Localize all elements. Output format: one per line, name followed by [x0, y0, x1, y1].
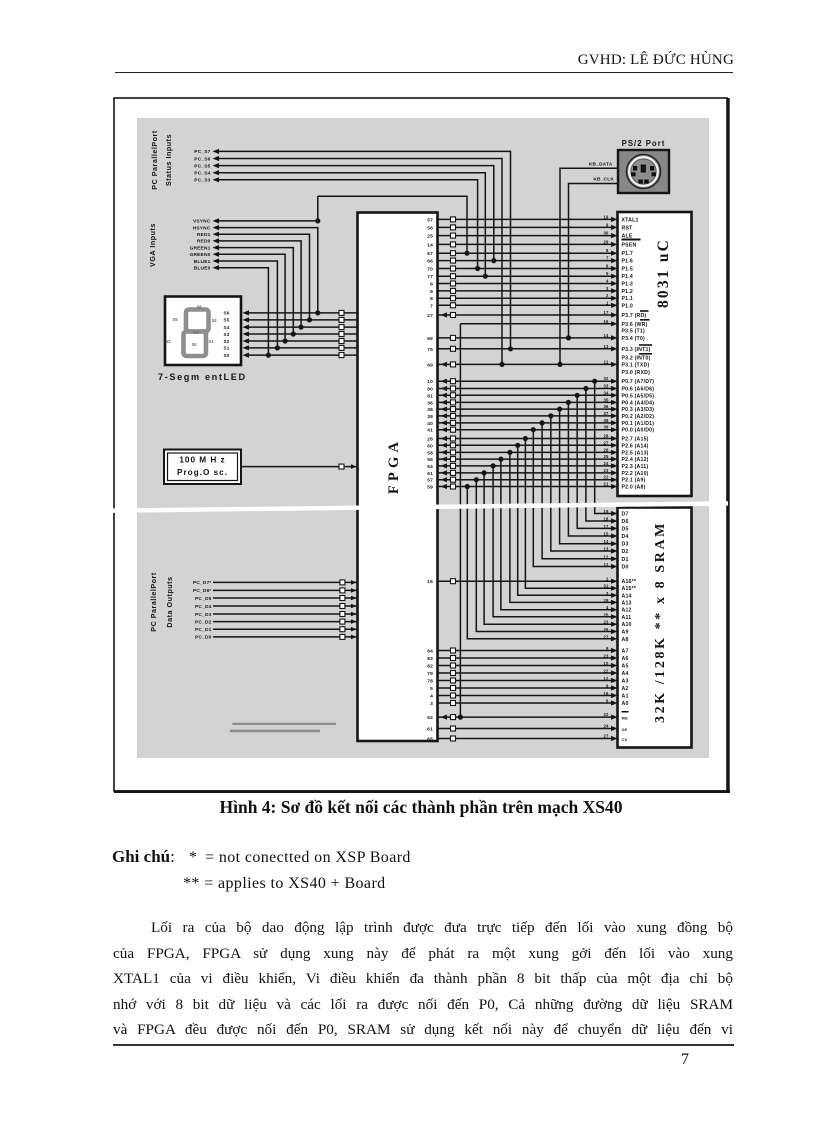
svg-text:57: 57	[427, 217, 433, 223]
svg-text:PC_D6*: PC_D6*	[193, 588, 212, 594]
svg-text:PC_D2: PC_D2	[195, 619, 212, 625]
svg-text:14: 14	[603, 333, 609, 338]
svg-text:P0.4 (A4/D4): P0.4 (A4/D4)	[622, 400, 655, 406]
svg-text:A7: A7	[622, 649, 629, 655]
svg-text:PC_S7: PC_S7	[194, 149, 210, 155]
svg-text:S1: S1	[208, 339, 214, 344]
svg-text:P2.0 (A8): P2.0 (A8)	[622, 485, 646, 491]
svg-text:P3.0 (RXD): P3.0 (RXD)	[622, 370, 651, 376]
svg-text:A2: A2	[622, 686, 629, 692]
svg-text:10: 10	[427, 379, 433, 385]
svg-text:P2.3 (A11): P2.3 (A11)	[622, 464, 649, 470]
svg-text:KB_DATA: KB_DATA	[589, 161, 613, 167]
svg-text:75: 75	[427, 347, 433, 353]
svg-text:19: 19	[603, 509, 609, 514]
svg-text:PC_D7*: PC_D7*	[193, 580, 212, 586]
svg-text:41: 41	[427, 428, 433, 434]
svg-text:54: 54	[427, 464, 433, 470]
svg-text:60: 60	[427, 443, 433, 449]
svg-text:P0.3 (A3/D3): P0.3 (A3/D3)	[622, 407, 655, 413]
svg-text:27: 27	[603, 634, 609, 639]
svg-text:P2.4 (A12): P2.4 (A12)	[622, 457, 649, 463]
svg-text:84: 84	[427, 649, 433, 655]
svg-text:P1.3: P1.3	[622, 282, 633, 288]
svg-text:56: 56	[427, 225, 433, 231]
svg-text:25: 25	[603, 612, 609, 617]
svg-text:P3.2 (INT0): P3.2 (INT0)	[622, 356, 651, 362]
svg-text:WE: WE	[622, 717, 629, 721]
svg-text:P2.2 (A10): P2.2 (A10)	[622, 471, 649, 477]
svg-text:67: 67	[427, 251, 433, 257]
svg-text:57: 57	[427, 478, 433, 484]
svg-text:PC_D0: PC_D0	[195, 635, 212, 641]
svg-text:23: 23	[603, 468, 609, 473]
svg-text:26: 26	[603, 447, 609, 452]
svg-text:15: 15	[603, 532, 609, 537]
svg-text:OE: OE	[622, 728, 628, 732]
svg-text:78: 78	[427, 679, 433, 685]
svg-text:P1.4: P1.4	[622, 274, 633, 280]
svg-text:P1.0: P1.0	[622, 303, 633, 309]
svg-text:D7: D7	[622, 512, 629, 518]
svg-text:69: 69	[427, 336, 433, 342]
svg-text:36: 36	[603, 404, 609, 409]
svg-text:24: 24	[603, 724, 609, 729]
svg-text:S2: S2	[165, 339, 171, 344]
svg-text:S1: S1	[223, 346, 229, 351]
svg-text:12: 12	[603, 554, 609, 559]
svg-text:D5: D5	[622, 526, 629, 532]
svg-text:P1.7: P1.7	[622, 251, 633, 257]
svg-text:P1.5: P1.5	[622, 267, 633, 273]
svg-text:S6: S6	[196, 305, 202, 310]
svg-text:A1: A1	[622, 694, 629, 700]
svg-text:8: 8	[430, 296, 433, 302]
svg-text:62: 62	[427, 715, 433, 721]
svg-text:32K /128K ** x 8 SRAM: 32K /128K ** x 8 SRAM	[653, 521, 668, 723]
svg-text:PC_D5: PC_D5	[195, 596, 212, 602]
svg-text:21: 21	[603, 482, 609, 487]
svg-text:BLUE0: BLUE0	[194, 266, 211, 272]
svg-text:S3: S3	[193, 330, 199, 335]
svg-text:P0.7 (A7/D7): P0.7 (A7/D7)	[622, 379, 655, 385]
svg-text:PC ParallelPort: PC ParallelPort	[149, 572, 158, 632]
svg-text:P3.4 (T0): P3.4 (T0)	[622, 336, 645, 342]
svg-text:77: 77	[427, 274, 433, 280]
svg-text:27: 27	[603, 440, 609, 445]
svg-text:38: 38	[427, 407, 433, 413]
svg-text:XTAL1: XTAL1	[622, 217, 639, 223]
svg-text:A13: A13	[622, 600, 632, 606]
svg-text:33: 33	[603, 384, 609, 389]
svg-text:23: 23	[603, 620, 609, 625]
svg-text:7-Segm entLED: 7-Segm entLED	[158, 372, 247, 382]
svg-text:RST: RST	[622, 225, 634, 231]
svg-text:29: 29	[603, 239, 609, 244]
svg-text:GREEN0: GREEN0	[190, 252, 211, 258]
svg-text:3: 3	[430, 701, 433, 707]
svg-text:35: 35	[603, 397, 609, 402]
svg-text:S4: S4	[223, 325, 229, 330]
svg-text:P1.6: P1.6	[622, 259, 633, 265]
svg-text:A4: A4	[622, 671, 629, 677]
svg-text:32: 32	[603, 376, 609, 381]
svg-text:Status Inputs: Status Inputs	[164, 134, 173, 186]
svg-text:16: 16	[427, 579, 433, 585]
svg-text:P0.5 (A5/D5): P0.5 (A5/D5)	[622, 393, 655, 399]
svg-text:28: 28	[603, 598, 609, 603]
svg-text:11: 11	[604, 359, 609, 364]
svg-text:PC_S3: PC_S3	[194, 178, 210, 184]
svg-text:79: 79	[427, 671, 433, 677]
svg-text:PSEN: PSEN	[622, 242, 637, 248]
svg-text:61: 61	[427, 727, 433, 733]
svg-text:S6: S6	[223, 311, 229, 316]
svg-text:P1.1: P1.1	[622, 296, 633, 302]
svg-text:PS/2 Port: PS/2 Port	[622, 139, 666, 148]
svg-text:KB_CLK: KB_CLK	[593, 177, 614, 183]
svg-text:P0.1 (A1/D1): P0.1 (A1/D1)	[622, 421, 655, 427]
svg-text:18: 18	[603, 517, 609, 522]
svg-text:P1.2: P1.2	[622, 289, 633, 295]
svg-text:25: 25	[427, 234, 433, 240]
svg-text:59: 59	[427, 485, 433, 491]
svg-text:P3.6 (WR): P3.6 (WR)	[622, 322, 648, 328]
svg-text:PC_D3: PC_D3	[195, 612, 212, 618]
svg-text:PC_S5: PC_S5	[194, 163, 210, 169]
svg-text:30: 30	[603, 231, 609, 236]
svg-text:8031 uC: 8031 uC	[655, 238, 672, 308]
svg-text:66: 66	[427, 259, 433, 265]
svg-text:A16**: A16**	[622, 579, 637, 585]
svg-text:A3: A3	[622, 679, 629, 685]
svg-text:A5: A5	[622, 664, 629, 670]
svg-text:P0.0 (A0/D0): P0.0 (A0/D0)	[622, 428, 655, 434]
svg-text:S4: S4	[211, 318, 217, 323]
svg-text:D2: D2	[622, 549, 629, 555]
svg-text:P2.1 (A9): P2.1 (A9)	[622, 478, 646, 484]
svg-text:37: 37	[603, 411, 609, 416]
svg-text:A15**: A15**	[622, 586, 637, 592]
svg-text:P0.2 (A2/D2): P0.2 (A2/D2)	[622, 414, 655, 420]
svg-text:13: 13	[603, 344, 609, 349]
svg-text:RED0: RED0	[197, 239, 211, 245]
svg-text:PC_D1: PC_D1	[195, 627, 212, 633]
svg-text:83: 83	[427, 656, 433, 662]
svg-text:A8: A8	[622, 637, 629, 643]
svg-text:24: 24	[603, 461, 609, 466]
svg-text:S2: S2	[223, 339, 229, 344]
svg-text:S0: S0	[223, 353, 229, 358]
svg-text:CS: CS	[622, 738, 628, 742]
svg-text:RED1: RED1	[197, 232, 211, 238]
svg-text:S5: S5	[223, 318, 229, 323]
svg-text:D4: D4	[622, 534, 629, 540]
svg-text:13: 13	[603, 547, 609, 552]
svg-text:A6: A6	[622, 656, 629, 662]
svg-text:36: 36	[427, 400, 433, 406]
svg-text:BLUE1: BLUE1	[194, 259, 211, 265]
svg-text:19: 19	[603, 214, 609, 219]
svg-text:80: 80	[427, 387, 433, 393]
svg-text:A0: A0	[622, 701, 629, 707]
svg-text:P3.3 (INT1): P3.3 (INT1)	[622, 347, 651, 353]
svg-text:P2.7 (A15): P2.7 (A15)	[622, 437, 649, 443]
svg-text:PC ParallelPort: PC ParallelPort	[150, 130, 159, 190]
svg-text:25: 25	[603, 454, 609, 459]
svg-text:FPGA: FPGA	[386, 438, 402, 494]
svg-text:P3.5 (T1): P3.5 (T1)	[622, 329, 645, 335]
svg-text:D6: D6	[622, 519, 629, 525]
svg-text:26: 26	[603, 627, 609, 632]
svg-text:5: 5	[430, 686, 433, 692]
svg-text:7: 7	[430, 303, 433, 309]
svg-text:39: 39	[427, 414, 433, 420]
svg-text:A9: A9	[622, 630, 629, 636]
svg-text:31: 31	[603, 584, 609, 589]
svg-text:61: 61	[427, 471, 433, 477]
svg-text:22: 22	[603, 475, 609, 480]
svg-text:58: 58	[427, 450, 433, 456]
svg-text:100 M H z: 100 M H z	[179, 456, 225, 465]
svg-text:PC_S4: PC_S4	[194, 171, 210, 177]
svg-text:A12: A12	[622, 608, 632, 614]
svg-text:16: 16	[603, 319, 609, 324]
svg-text:38: 38	[603, 418, 609, 423]
svg-text:81: 81	[427, 393, 433, 399]
svg-text:VGA Inputs: VGA Inputs	[148, 223, 157, 267]
svg-text:S5: S5	[172, 317, 178, 322]
svg-text:11: 11	[604, 562, 609, 567]
svg-text:4: 4	[430, 694, 433, 700]
svg-text:P0.6 (A6/D6): P0.6 (A6/D6)	[622, 387, 655, 393]
svg-text:17: 17	[603, 524, 609, 529]
svg-text:PC_D4: PC_D4	[195, 604, 212, 610]
svg-text:17: 17	[603, 310, 609, 315]
svg-text:A10: A10	[622, 622, 632, 628]
svg-text:P3.1 (TXD): P3.1 (TXD)	[622, 362, 650, 368]
svg-text:22: 22	[603, 712, 609, 717]
svg-text:65: 65	[427, 737, 433, 743]
svg-text:PC_S6: PC_S6	[194, 156, 210, 162]
svg-text:S0: S0	[191, 342, 197, 347]
svg-text:HSYNC: HSYNC	[193, 225, 211, 231]
svg-text:34: 34	[603, 390, 609, 395]
svg-text:9: 9	[430, 289, 433, 295]
svg-text:GREEN1: GREEN1	[190, 245, 211, 251]
svg-text:A11: A11	[622, 615, 632, 621]
svg-text:27: 27	[603, 734, 609, 739]
svg-text:P2.6 (A14): P2.6 (A14)	[622, 443, 649, 449]
svg-text:82: 82	[427, 664, 433, 670]
svg-text:28: 28	[427, 437, 433, 443]
svg-text:27: 27	[427, 313, 433, 319]
svg-text:28: 28	[603, 434, 609, 439]
svg-text:Data Outputs: Data Outputs	[165, 576, 174, 627]
svg-text:A14: A14	[622, 593, 632, 599]
svg-text:P2.5 (A13): P2.5 (A13)	[622, 450, 649, 456]
svg-text:14: 14	[427, 242, 433, 248]
svg-text:D1: D1	[622, 557, 629, 563]
svg-text:Prog.O sc.: Prog.O sc.	[177, 468, 228, 477]
svg-text:6: 6	[430, 282, 433, 288]
svg-text:VSYNC: VSYNC	[193, 219, 211, 225]
svg-text:D3: D3	[622, 542, 629, 548]
svg-text:14: 14	[603, 539, 609, 544]
svg-text:70: 70	[427, 267, 433, 273]
svg-text:40: 40	[427, 421, 433, 427]
svg-text:D0: D0	[622, 565, 629, 571]
svg-text:S3: S3	[223, 332, 229, 337]
svg-text:69: 69	[427, 362, 433, 368]
svg-text:39: 39	[603, 425, 609, 430]
svg-text:P3.7 (RD): P3.7 (RD)	[622, 313, 647, 319]
svg-text:56: 56	[427, 457, 433, 463]
